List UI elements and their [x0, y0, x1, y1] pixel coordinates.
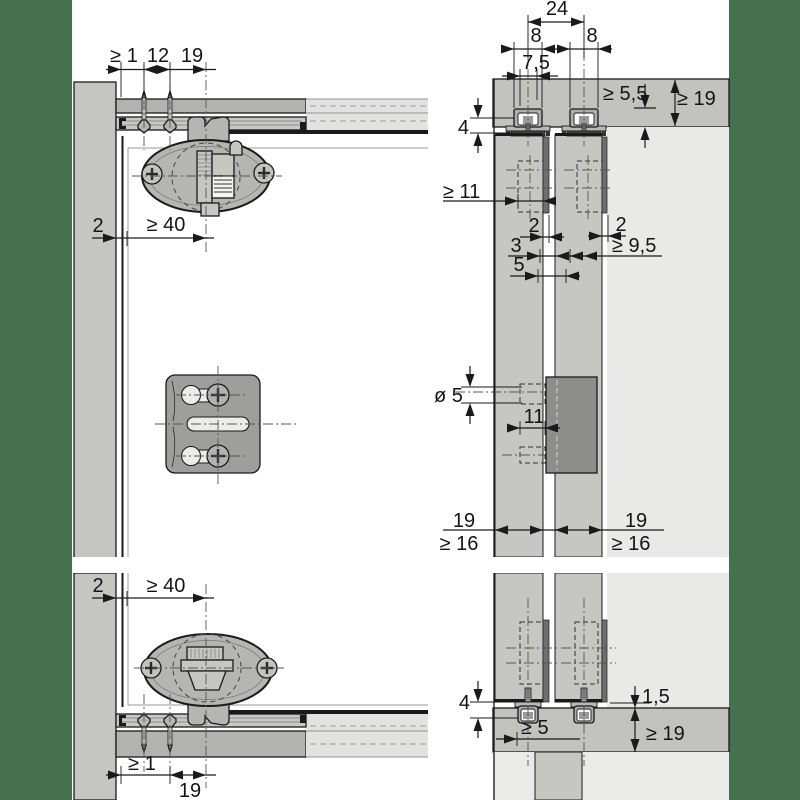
view-bottom-right [493, 573, 729, 800]
dim-label-4: 4 [458, 117, 469, 139]
phillips-screw [142, 164, 162, 184]
door-2-edge-strip [602, 620, 607, 702]
side-wall-panel [74, 573, 116, 800]
area-below-panel [582, 752, 729, 800]
dim-label-min16-right: ≥ 16 [612, 533, 651, 555]
soft-close-unit [546, 377, 597, 473]
door-1-section [495, 573, 543, 702]
dim-label-min40: ≥ 40 [147, 214, 186, 236]
top-board-break [306, 99, 428, 130]
dim-label-min1: ≥ 1 [110, 45, 138, 67]
drawing-canvas: ≥ 1 12 19 2 ≥ 40 2 ≥ 40 ≥ 1 19 24 [0, 0, 800, 800]
dim-label-19: 19 [181, 45, 203, 67]
phillips-screw [254, 163, 274, 183]
rail-end-stop [300, 122, 306, 130]
dim-label-2-left: 2 [528, 215, 539, 237]
rail-front-edge [228, 710, 428, 714]
door-1-edge-strip [543, 620, 549, 702]
dim-label-8-left: 8 [530, 25, 541, 47]
dim-label-min19: ≥ 19 [677, 88, 716, 110]
dim-label-min5-5: ≥ 5,5 [603, 83, 647, 105]
dim-label-8-right: 8 [586, 25, 597, 47]
dim-label-24: 24 [546, 0, 568, 20]
dim-label-19: 19 [179, 780, 201, 800]
door-2-section [555, 135, 602, 557]
dim-label-12: 12 [147, 45, 169, 67]
dim-label-2: 2 [92, 215, 103, 237]
cabinet-interior [607, 127, 729, 557]
dim-label-min5: ≥ 5 [521, 717, 549, 739]
area-below-panel [493, 752, 535, 800]
dim-label-min1: ≥ 1 [128, 753, 156, 775]
dim-label-5: 5 [513, 254, 524, 276]
dim-label-dia5: ø 5 [434, 385, 463, 407]
door-1-section [495, 135, 543, 557]
dim-label-4: 4 [459, 692, 470, 714]
dim-label-min16-left: ≥ 16 [440, 533, 479, 555]
bottom-board-break [306, 714, 428, 757]
dim-label-11: 11 [524, 406, 545, 428]
rail-front-edge [228, 130, 428, 134]
technical-drawing-page: ≥ 1 12 19 2 ≥ 40 2 ≥ 40 ≥ 1 19 24 [0, 0, 800, 800]
dim-label-7-5: 7,5 [522, 52, 550, 74]
side-wall-panel [74, 82, 116, 558]
dim-label-min11: ≥ 11 [443, 181, 480, 203]
view-break-gap [72, 557, 729, 573]
dim-label-min19: ≥ 19 [646, 723, 685, 745]
dim-label-19-left: 19 [453, 510, 475, 532]
vertical-divider [535, 752, 582, 800]
dim-label-1-5: 1,5 [642, 686, 670, 708]
door-2-section [555, 573, 602, 702]
dim-label-2: 2 [92, 575, 103, 597]
dim-label-min9-5: ≥ 9,5 [612, 235, 656, 257]
dim-label-19-right: 19 [625, 510, 647, 532]
door-2-edge-strip [602, 137, 607, 213]
dim-label-2-right: 2 [615, 214, 626, 236]
dim-label-min40: ≥ 40 [147, 575, 186, 597]
